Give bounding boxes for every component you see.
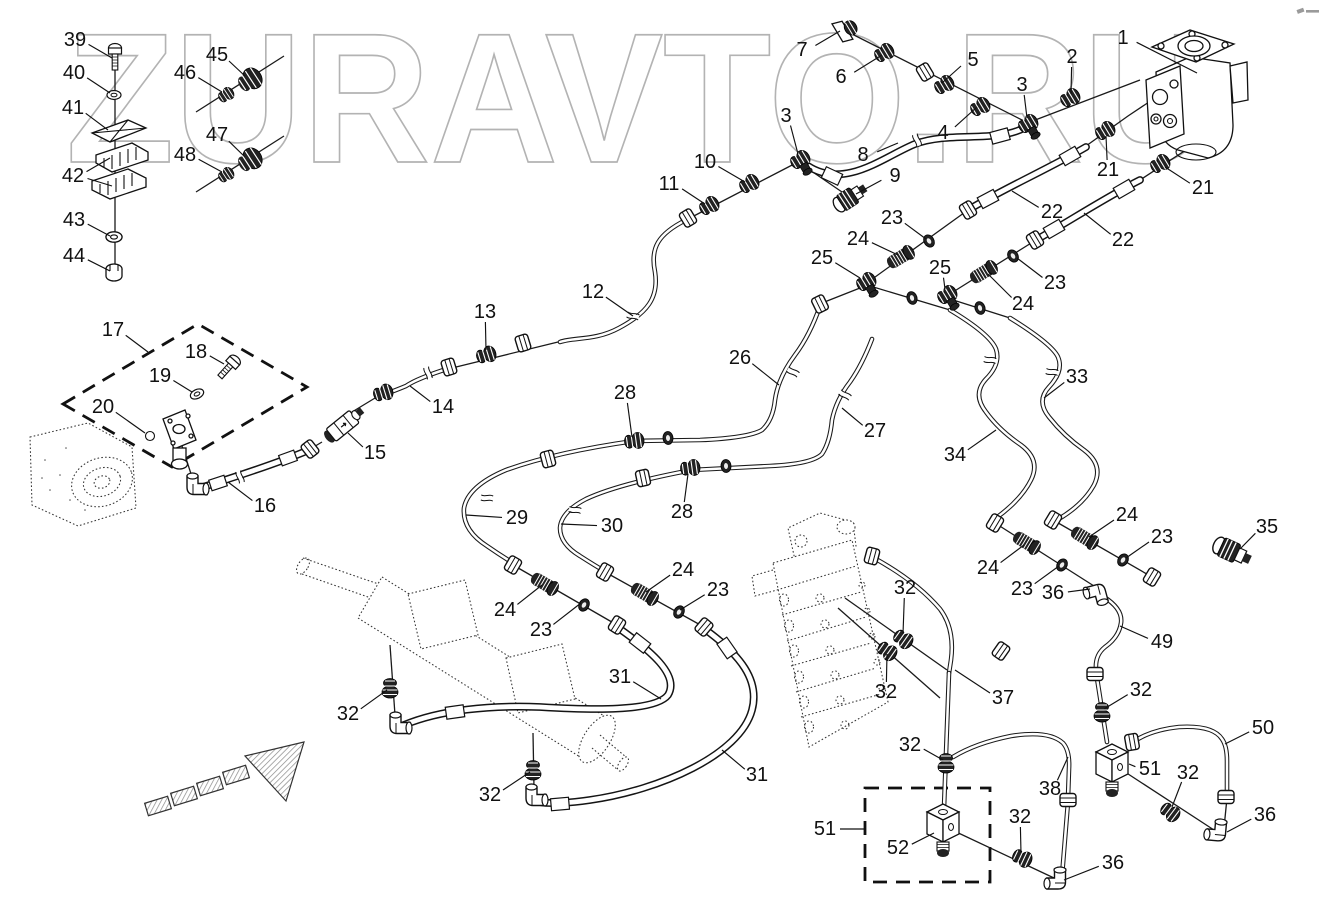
- callout-leader-25: [835, 263, 860, 278]
- callout-leader-52: [912, 833, 934, 844]
- callout-leader-24: [872, 243, 898, 255]
- pipe-34-core: [950, 310, 1034, 518]
- callout-label-13: 13: [474, 301, 496, 323]
- o-ring-20: [146, 432, 155, 441]
- callout-label-8: 8: [857, 144, 868, 166]
- callout-label-28: 28: [614, 382, 636, 404]
- callout-label-3: 3: [1016, 74, 1027, 96]
- callout-label-18: 18: [185, 341, 207, 363]
- callout-label-7: 7: [796, 39, 807, 61]
- callout-label-1: 1: [1117, 27, 1128, 49]
- callout-label-25: 25: [929, 257, 951, 279]
- callout-label-23: 23: [707, 579, 729, 601]
- callout-leader-24: [1001, 545, 1024, 563]
- callout-label-25: 25: [811, 247, 833, 269]
- callout-leader-22: [1084, 213, 1111, 234]
- callout-leader-16: [228, 482, 252, 501]
- callout-label-32: 32: [899, 734, 921, 756]
- callout-label-11: 11: [659, 173, 680, 195]
- callout-leader-29: [466, 515, 502, 517]
- callout-label-47: 47: [206, 124, 228, 146]
- callout-leader-36: [1064, 866, 1099, 880]
- callout-label-36: 36: [1102, 852, 1124, 874]
- callout-label-52: 52: [887, 837, 909, 859]
- callout-leader-34: [968, 430, 996, 450]
- steering-unit-drawing: [1146, 30, 1248, 160]
- callout-label-21: 21: [1192, 177, 1214, 199]
- callout-label-32: 32: [1177, 762, 1199, 784]
- callout-leader-24: [988, 274, 1012, 298]
- callout-label-41: 41: [62, 97, 84, 119]
- callout-label-5: 5: [967, 49, 978, 71]
- callout-label-24: 24: [494, 599, 516, 621]
- callout-label-9: 9: [889, 165, 900, 187]
- callout-leader-31: [633, 682, 661, 699]
- callout-label-40: 40: [63, 62, 85, 84]
- callout-label-29: 29: [506, 507, 528, 529]
- pipe-49-core: [1096, 597, 1121, 674]
- callout-leader-44: [88, 260, 110, 271]
- callout-label-23: 23: [1011, 578, 1033, 600]
- callout-leader-32: [1172, 782, 1182, 807]
- callout-label-36: 36: [1042, 582, 1064, 604]
- hydraulic-parts-diagram: ZURAVTO.RU: [0, 0, 1325, 915]
- callout-label-6: 6: [835, 66, 846, 88]
- callout-leader-27: [842, 408, 863, 425]
- callout-label-16: 16: [254, 495, 276, 517]
- callout-leader-15: [348, 433, 363, 447]
- callout-leader-12: [606, 297, 633, 316]
- callout-label-22: 22: [1041, 201, 1063, 223]
- callout-leader-24: [1089, 520, 1114, 537]
- callout-label-30: 30: [601, 515, 623, 537]
- callout-label-44: 44: [63, 245, 85, 267]
- callout-label-23: 23: [1151, 526, 1173, 548]
- callout-label-20: 20: [92, 396, 114, 418]
- callout-label-31: 31: [609, 666, 631, 688]
- callout-leader-26: [752, 364, 779, 385]
- callout-leader-35: [1240, 533, 1255, 549]
- callout-leader-37: [955, 670, 990, 693]
- callout-leader-31: [722, 750, 745, 769]
- callout-label-24: 24: [672, 559, 694, 581]
- callout-label-51: 51: [1139, 758, 1161, 780]
- callout-leader-17: [126, 335, 148, 352]
- callout-label-12: 12: [582, 281, 604, 303]
- callout-label-27: 27: [864, 420, 886, 442]
- callout-label-28: 28: [671, 501, 693, 523]
- callout-label-45: 45: [206, 44, 228, 66]
- pipe-14-core: [385, 368, 450, 394]
- callout-leader-49: [1120, 626, 1148, 638]
- callout-label-17: 17: [102, 319, 124, 341]
- callout-label-14: 14: [432, 396, 454, 418]
- washer-43: [106, 232, 122, 242]
- callout-label-4: 4: [937, 122, 948, 144]
- callout-leader-13: [485, 322, 486, 350]
- callout-label-32: 32: [1009, 806, 1031, 828]
- steering-cylinder-drawing: [294, 556, 631, 773]
- callout-leader-23: [553, 603, 581, 624]
- callout-leader-24: [646, 575, 670, 592]
- callout-leader-32: [903, 598, 904, 634]
- callout-label-23: 23: [881, 207, 903, 229]
- callout-label-32: 32: [894, 577, 916, 599]
- callout-label-39: 39: [64, 29, 86, 51]
- callout-label-33: 33: [1066, 366, 1088, 388]
- valve-52: [927, 804, 959, 857]
- callout-label-51: 51: [814, 818, 836, 840]
- flange-elbow-drawing: [163, 410, 196, 469]
- callout-leader-23: [905, 223, 926, 239]
- callout-leader-20: [116, 412, 145, 433]
- callout-leader-36: [1227, 819, 1251, 832]
- callout-label-32: 32: [337, 703, 359, 725]
- callout-leader-28: [684, 474, 688, 502]
- callout-label-24: 24: [1116, 504, 1138, 526]
- callout-leader-19: [173, 381, 192, 393]
- callout-label-48: 48: [174, 144, 196, 166]
- callout-label-21: 21: [1097, 159, 1119, 181]
- nut-44: [106, 264, 122, 281]
- callout-label-42: 42: [62, 165, 84, 187]
- dashed-box-52: [865, 788, 990, 882]
- callout-leader-50: [1225, 732, 1249, 744]
- callout-label-49: 49: [1151, 631, 1173, 653]
- callout-label-26: 26: [729, 347, 751, 369]
- callout-label-43: 43: [63, 209, 85, 231]
- callout-label-38: 38: [1039, 778, 1061, 800]
- callout-leader-23: [680, 595, 705, 610]
- pipes-and-hoses: [200, 128, 1227, 876]
- callout-leader-23: [1017, 258, 1043, 278]
- callout-label-3: 3: [780, 105, 791, 127]
- callout-leader-32: [886, 654, 887, 682]
- callout-leader-28: [627, 403, 632, 437]
- callout-leader-32: [924, 749, 943, 760]
- callout-label-32: 32: [1130, 679, 1152, 701]
- callout-leader-32: [1020, 827, 1021, 853]
- callout-leader-32: [1104, 695, 1128, 709]
- callout-label-19: 19: [149, 365, 171, 387]
- callout-label-24: 24: [977, 557, 999, 579]
- callout-leader-51: [1129, 764, 1135, 767]
- callout-label-24: 24: [847, 228, 869, 250]
- callout-leader-2: [1071, 67, 1072, 94]
- callout-label-31: 31: [746, 764, 768, 786]
- callout-leader-23: [1126, 542, 1149, 558]
- callout-leader-30: [561, 524, 597, 526]
- callout-leader-25: [944, 278, 946, 289]
- callout-label-23: 23: [530, 619, 552, 641]
- callout-label-37: 37: [992, 687, 1014, 709]
- callout-label-46: 46: [174, 62, 196, 84]
- callout-label-24: 24: [1012, 293, 1034, 315]
- callout-label-35: 35: [1256, 516, 1278, 538]
- callout-leader-24: [517, 585, 542, 604]
- direction-arrow-icon: [145, 742, 304, 816]
- callout-label-15: 15: [364, 442, 386, 464]
- parts-diagram-page: ZURAVTO.RU: [0, 0, 1325, 915]
- callout-label-34: 34: [944, 444, 966, 466]
- callout-label-10: 10: [694, 151, 716, 173]
- callout-leader-18: [210, 356, 224, 364]
- callout-label-22: 22: [1112, 229, 1134, 251]
- callout-leader-14: [410, 386, 430, 402]
- callout-label-2: 2: [1066, 46, 1077, 68]
- callout-label-23: 23: [1044, 272, 1066, 294]
- callout-leader-32: [361, 690, 387, 709]
- callout-leader-38: [1057, 757, 1068, 780]
- callout-label-32: 32: [479, 784, 501, 806]
- valve-51: [1096, 744, 1128, 797]
- corner-mark-icon: [1296, 8, 1319, 14]
- callout-label-50: 50: [1252, 717, 1274, 739]
- callout-label-36: 36: [1254, 804, 1276, 826]
- callout-leader-43: [88, 224, 110, 236]
- pipe-12: [560, 220, 686, 342]
- callout-label-32: 32: [875, 681, 897, 703]
